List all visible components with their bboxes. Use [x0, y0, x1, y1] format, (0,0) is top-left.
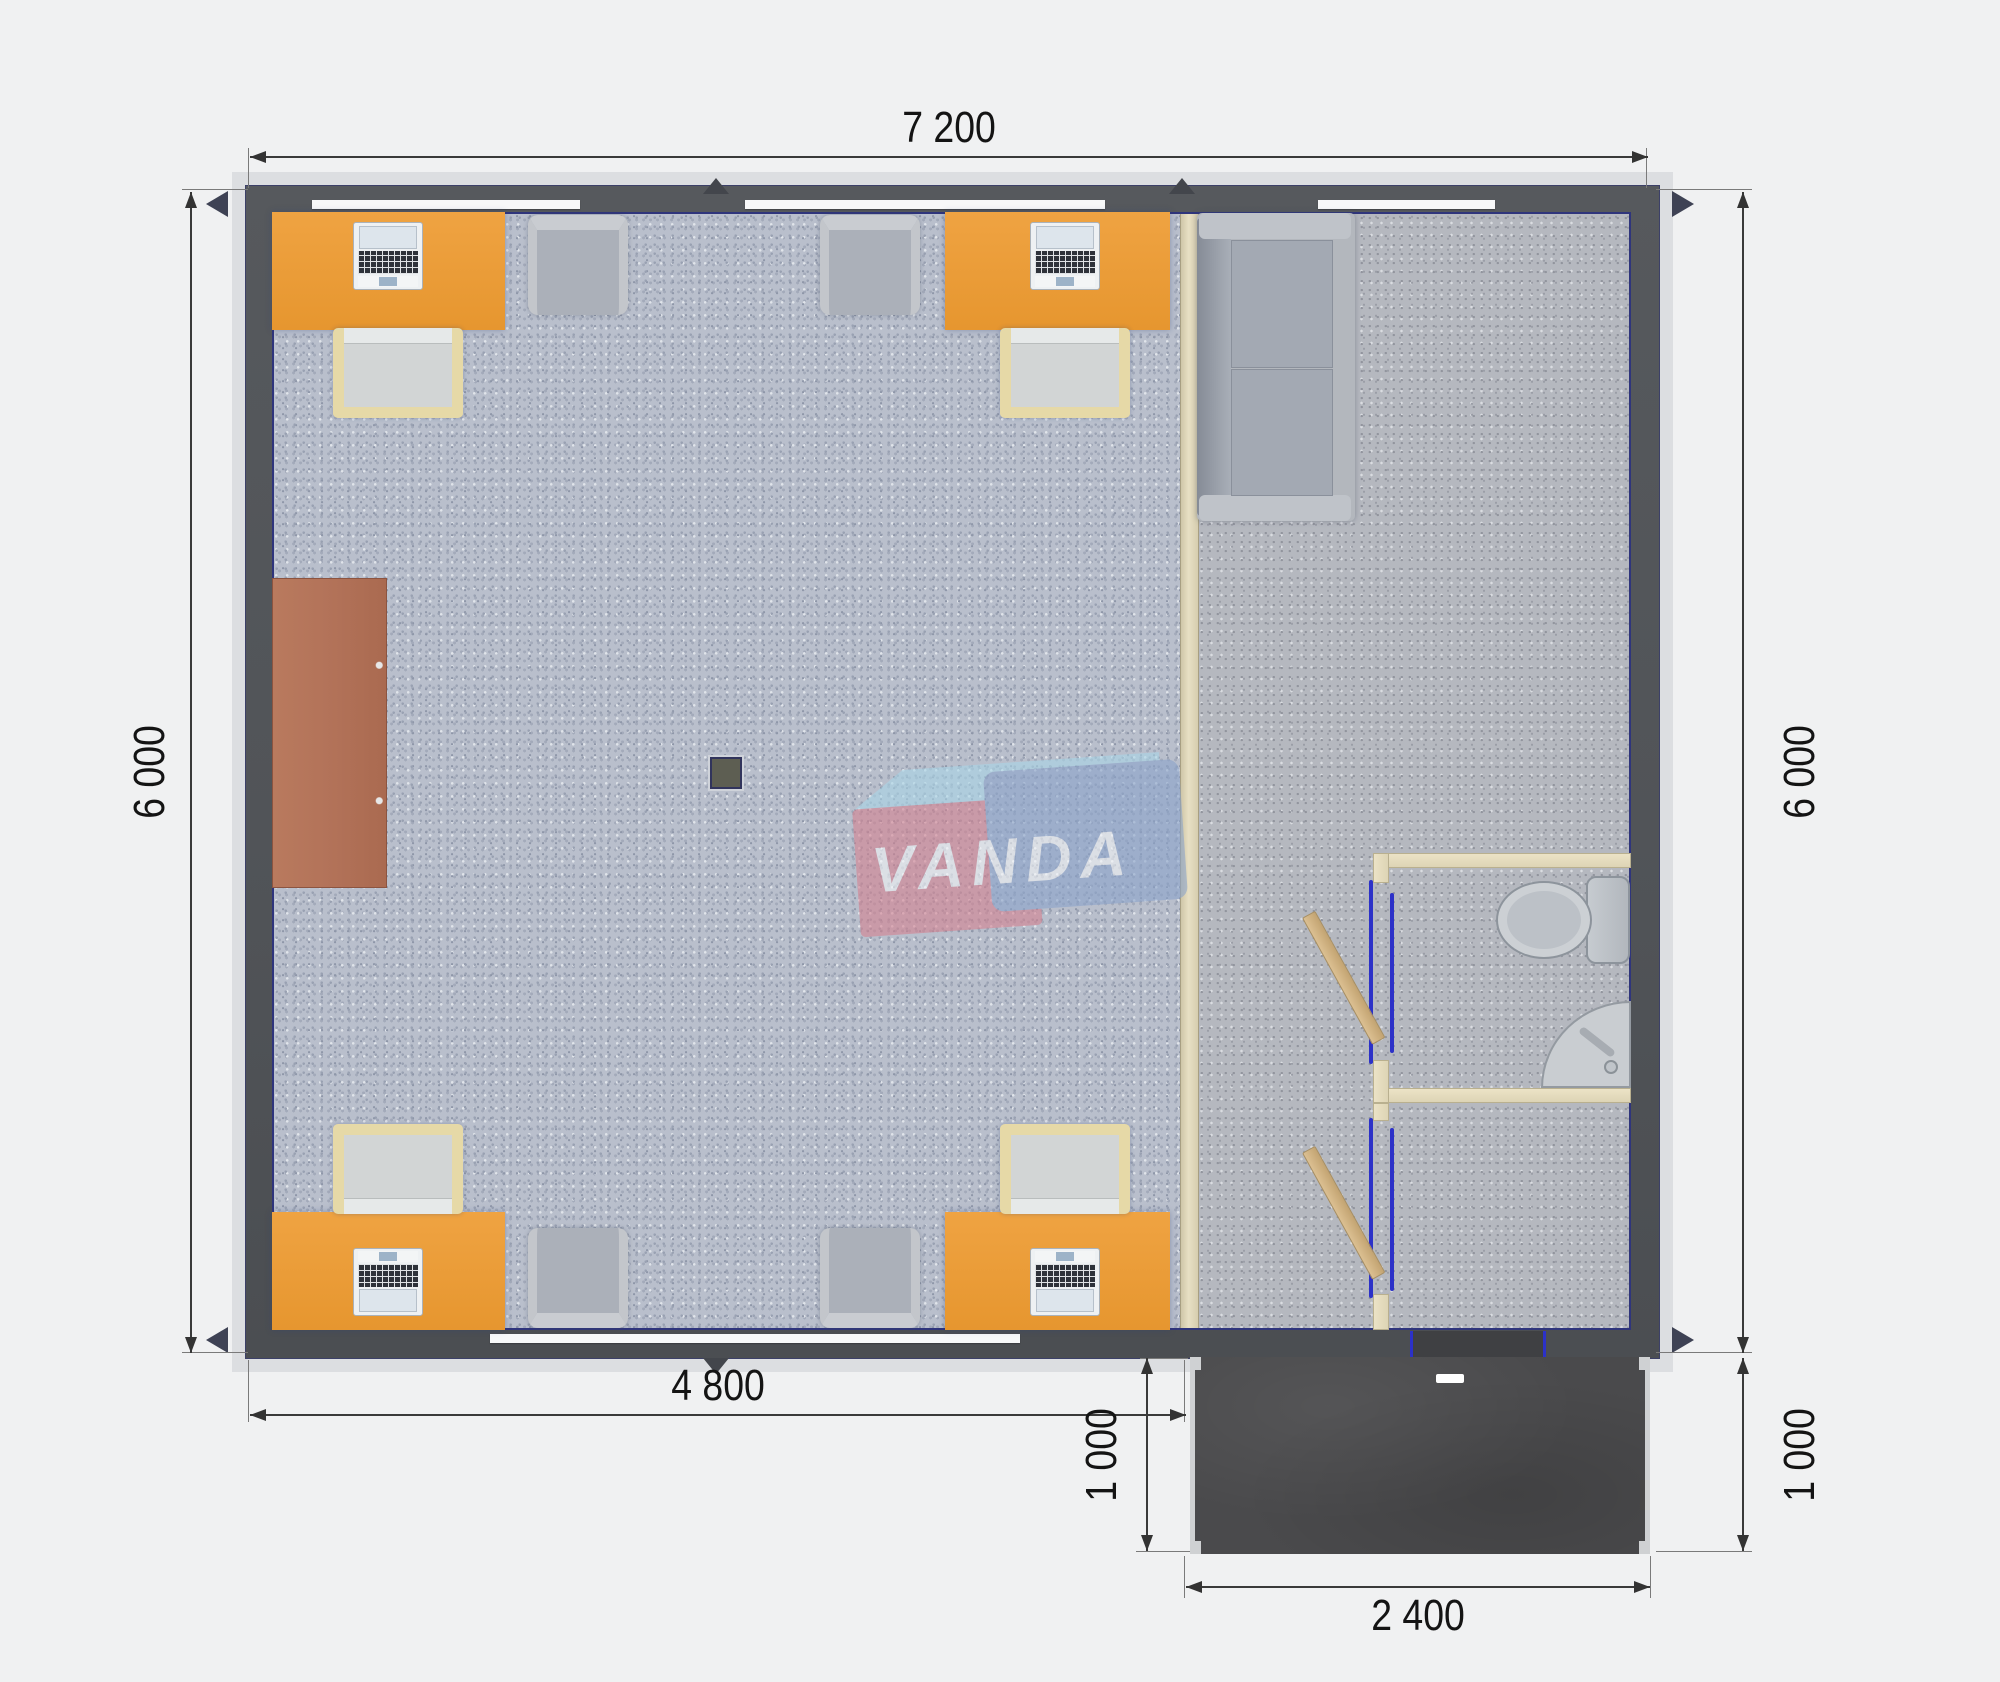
laptop-keyboard [358, 1264, 418, 1287]
porch-edge-left [1190, 1357, 1195, 1554]
dimension-line-left [190, 192, 192, 1353]
faucet-knob [1604, 1060, 1618, 1074]
bathroom-wall-bottom [1373, 1088, 1631, 1103]
dimension-label-right: 6 000 [1775, 725, 1825, 819]
porch-post-top-left [1190, 1357, 1201, 1370]
extension-line [1184, 1556, 1185, 1598]
arrowhead [1737, 192, 1749, 208]
laptop-top-right [1030, 222, 1100, 290]
corner-arrow-bottom-left [206, 1327, 228, 1353]
porch-deck [1190, 1357, 1650, 1554]
arrowhead [1634, 1581, 1650, 1593]
corner-arrow-top-left [206, 191, 228, 217]
arrowhead [1737, 1337, 1749, 1353]
bathroom-door-frame-right [1390, 893, 1394, 1053]
laptop-palmrest [1035, 1251, 1095, 1262]
laptop-keyboard [358, 251, 418, 274]
window-top-3 [1318, 200, 1495, 209]
window-bottom-1 [490, 1334, 1020, 1343]
arrowhead [1141, 1358, 1153, 1374]
laptop-screen [359, 1289, 417, 1312]
laptop-bottom-left [353, 1248, 423, 1316]
arrowhead [1141, 1535, 1153, 1551]
entrance-door [1410, 1331, 1546, 1357]
laptop-trackpad [1056, 1252, 1074, 1261]
extension-line [1656, 1551, 1752, 1552]
dimension-line-right [1742, 192, 1744, 1353]
desk-chair-bottom-right [1000, 1124, 1130, 1214]
toilet-bowl [1496, 881, 1592, 959]
arrowhead [1737, 1535, 1749, 1551]
bathroom-wall-left-lower [1373, 1060, 1389, 1103]
dimension-line-porch-right [1742, 1358, 1744, 1551]
arrowhead [185, 1337, 197, 1353]
desk-chair-top-left [333, 328, 463, 418]
laptop-palmrest [358, 1251, 418, 1262]
sofa-cushion-2 [1231, 369, 1333, 496]
sofa-armrest-bottom [1199, 495, 1351, 521]
porch-post-bottom-right [1639, 1541, 1650, 1554]
laptop-keyboard [1035, 251, 1095, 274]
dimension-label-porch-bottom: 2 400 [1371, 1591, 1465, 1641]
sofa [1197, 213, 1355, 521]
porch-edge-right [1645, 1357, 1650, 1554]
laptop-screen [1036, 226, 1094, 249]
laptop-trackpad [1056, 277, 1074, 286]
extension-line [182, 189, 248, 190]
arrowhead [185, 192, 197, 208]
desk-chair-top-right [1000, 328, 1130, 418]
extension-line [248, 1360, 249, 1422]
extension-line [1136, 1551, 1190, 1552]
storage-wall-left-upper [1373, 1103, 1389, 1121]
floor-plan-canvas: VANDA [0, 0, 2000, 1682]
arrowhead [1170, 1409, 1186, 1421]
storage-door-frame-right [1390, 1128, 1394, 1291]
porch-post-bottom-left [1190, 1541, 1201, 1554]
desk-chair-bottom-left [333, 1124, 463, 1214]
toilet-tank [1586, 876, 1630, 964]
window-top-2 [745, 200, 1105, 209]
laptop-trackpad [379, 1252, 397, 1261]
module-joint-marker-top-2 [1169, 178, 1195, 194]
laptop-screen [1036, 1289, 1094, 1312]
bathroom-wall-top [1373, 853, 1631, 868]
sofa-backrest [1197, 218, 1231, 516]
sofa-armrest-top [1199, 213, 1351, 239]
corner-arrow-top-right [1672, 191, 1694, 217]
arrowhead [250, 1409, 266, 1421]
laptop-palmrest [358, 276, 418, 287]
arrowhead [1632, 151, 1648, 163]
extension-line [248, 148, 249, 188]
corner-arrow-bottom-right [1672, 1327, 1694, 1353]
laptop-trackpad [379, 277, 397, 286]
arrowhead [1186, 1581, 1202, 1593]
armchair-bottom-right [820, 1228, 920, 1328]
extension-line [1656, 189, 1752, 190]
bathroom-wall-left-upper [1373, 853, 1389, 883]
entrance-door-handle [1436, 1374, 1464, 1383]
storage-cabinet [272, 578, 387, 888]
extension-line [1650, 1556, 1651, 1598]
ceiling-column [710, 757, 742, 789]
dimension-line-top [250, 156, 1648, 158]
dimension-label-left: 6 000 [125, 725, 175, 819]
laptop-screen [359, 226, 417, 249]
laptop-palmrest [1035, 276, 1095, 287]
laptop-keyboard [1035, 1264, 1095, 1287]
dimension-label-porch-left: 1 000 [1077, 1408, 1127, 1502]
vanda-watermark: VANDA [830, 740, 1210, 950]
sofa-cushion-1 [1231, 240, 1333, 368]
laptop-bottom-right [1030, 1248, 1100, 1316]
dimension-label-bottom-main: 4 800 [671, 1361, 765, 1411]
armchair-top-left [528, 215, 628, 315]
dimension-label-porch-right: 1 000 [1775, 1408, 1825, 1502]
window-top-1 [312, 200, 580, 209]
dimension-line-bottom-main [250, 1414, 1186, 1416]
laptop-top-left [353, 222, 423, 290]
dimension-line-porch-bottom [1186, 1586, 1650, 1588]
porch-post-top-right [1639, 1357, 1650, 1370]
arrowhead [250, 151, 266, 163]
dimension-line-porch-left [1146, 1358, 1148, 1551]
storage-wall-left-lower [1373, 1294, 1389, 1330]
dimension-label-top: 7 200 [902, 103, 996, 153]
arrowhead [1737, 1358, 1749, 1374]
armchair-top-right [820, 215, 920, 315]
module-joint-marker-top-1 [703, 178, 729, 194]
armchair-bottom-left [528, 1228, 628, 1328]
